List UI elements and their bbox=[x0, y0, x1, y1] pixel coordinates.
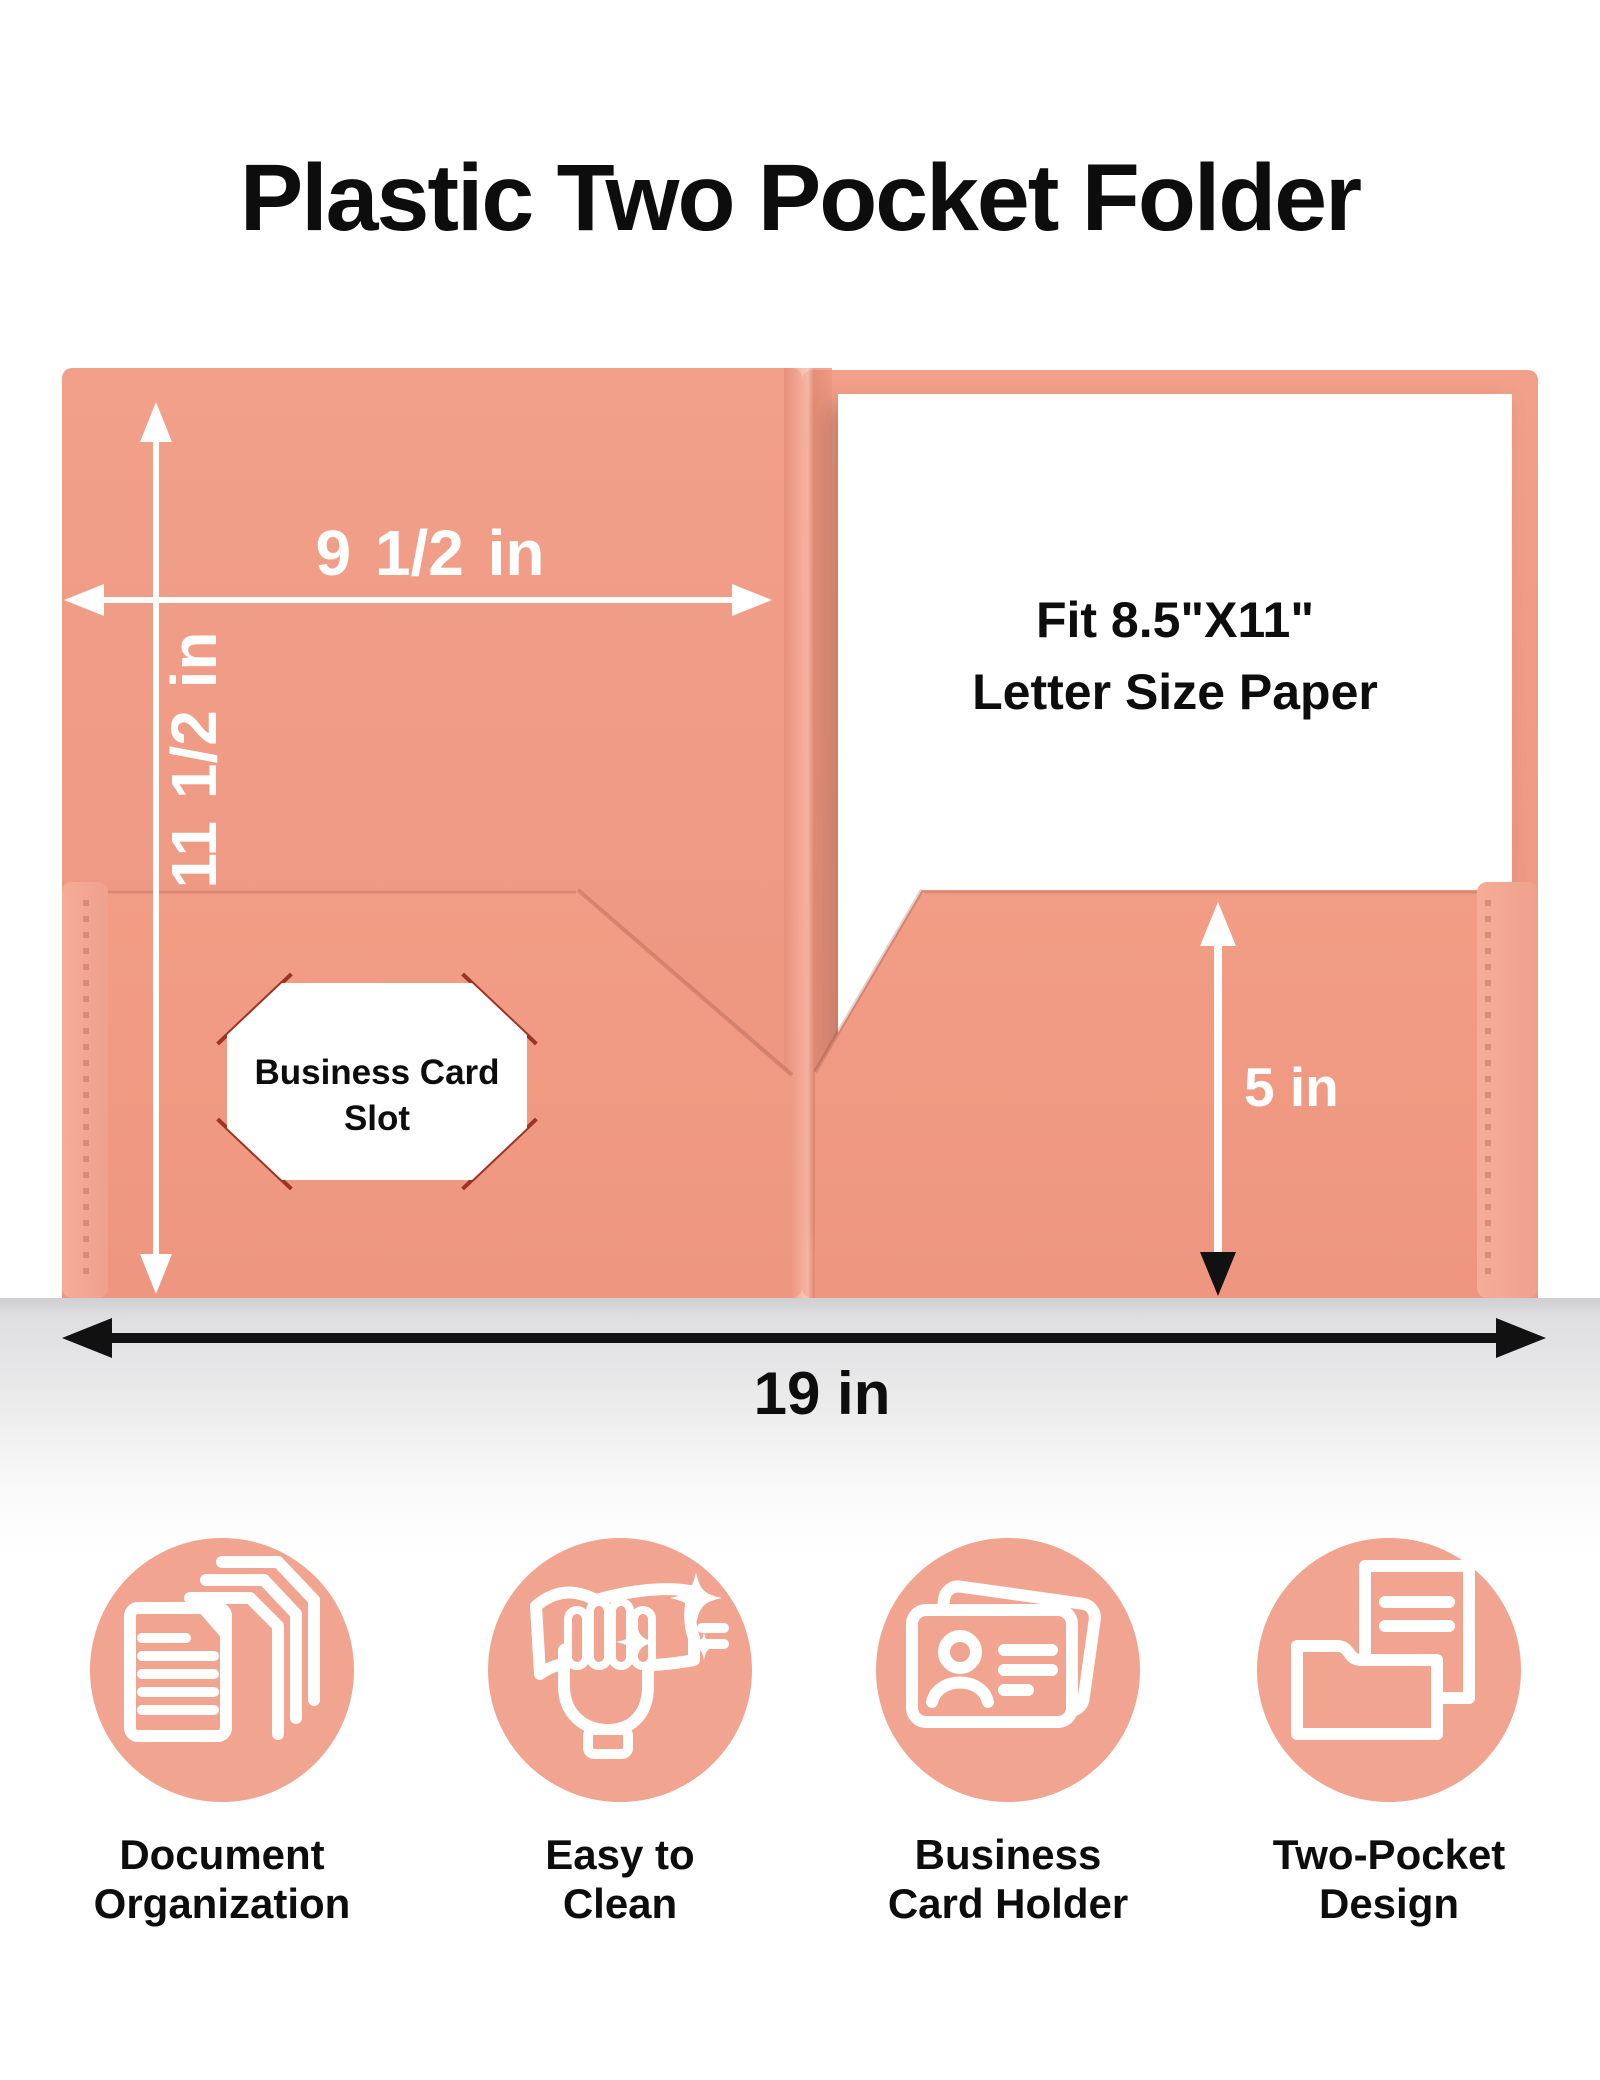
feature-label-document-organization: Document Organization bbox=[32, 1830, 412, 1928]
two-pocket-folder-icon bbox=[1257, 1538, 1521, 1802]
feature-circle-two-pocket-design bbox=[1257, 1538, 1521, 1802]
feature-label-line: Organization bbox=[32, 1879, 412, 1928]
pocket-depth-arrow bbox=[1200, 902, 1236, 1296]
feature-label-line: Two-Pocket bbox=[1199, 1830, 1579, 1879]
feature-label-line: Design bbox=[1199, 1879, 1579, 1928]
total-width-dimension-label: 19 in bbox=[662, 1359, 982, 1428]
product-infographic: Plastic Two Pocket Folder bbox=[0, 0, 1600, 2080]
feature-label-line: Business bbox=[818, 1830, 1198, 1879]
feature-label-line: Document bbox=[32, 1830, 412, 1879]
business-card-icon bbox=[876, 1538, 1140, 1802]
feature-label-easy-to-clean: Easy to Clean bbox=[430, 1830, 810, 1928]
total-width-arrow bbox=[62, 1318, 1546, 1358]
document-stack-icon bbox=[90, 1538, 354, 1802]
feature-label-line: Easy to bbox=[430, 1830, 810, 1879]
pocket-depth-dimension-label: 5 in bbox=[1244, 1055, 1339, 1119]
width-dimension-label: 9 1/2 in bbox=[270, 516, 590, 590]
feature-label-business-card-holder: Business Card Holder bbox=[818, 1830, 1198, 1928]
height-dimension-label: 11 1/2 in bbox=[157, 580, 227, 940]
feature-circle-easy-to-clean bbox=[488, 1538, 752, 1802]
feature-circle-business-card-holder bbox=[876, 1538, 1140, 1802]
feature-label-two-pocket-design: Two-Pocket Design bbox=[1199, 1830, 1579, 1928]
feature-circle-document-organization bbox=[90, 1538, 354, 1802]
feature-label-line: Clean bbox=[430, 1879, 810, 1928]
sparkle-clean-hand-icon bbox=[488, 1538, 752, 1802]
feature-label-line: Card Holder bbox=[818, 1879, 1198, 1928]
